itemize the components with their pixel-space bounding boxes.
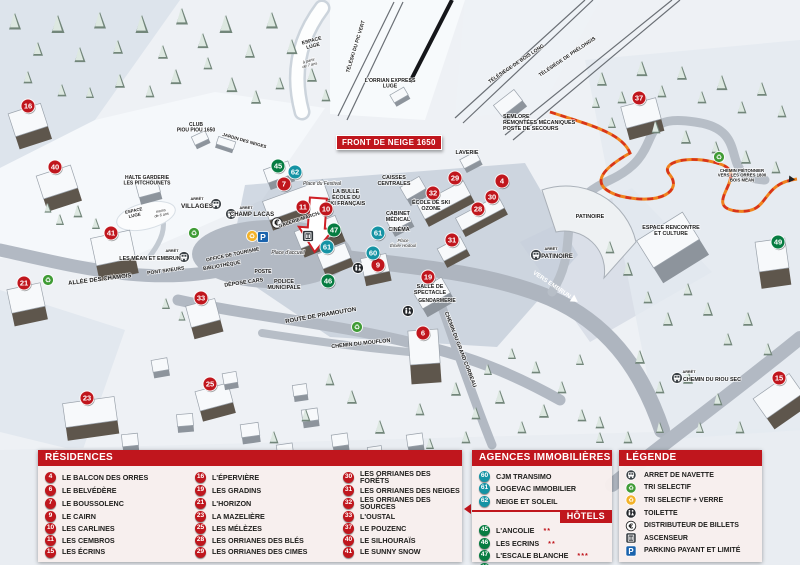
svg-text:P: P bbox=[260, 232, 266, 242]
svg-text:11: 11 bbox=[299, 203, 307, 212]
item-label: L'ESCALE BLANCHE bbox=[496, 552, 568, 559]
item-label: LE POUZENC bbox=[360, 525, 406, 532]
svg-text:♻: ♻ bbox=[628, 497, 634, 505]
legende-item: €DISTRIBUTEUR DE BILLETS bbox=[625, 519, 760, 532]
map-label: LAVERIE bbox=[456, 150, 479, 156]
item-label: DISTRIBUTEUR DE BILLETS bbox=[644, 522, 739, 529]
map-label: PATINOIRE bbox=[576, 214, 605, 220]
hotels-title: HÔTELS bbox=[560, 510, 612, 523]
residence-item: 11LES CEMBROS bbox=[45, 534, 195, 546]
svg-text:30: 30 bbox=[488, 193, 496, 202]
svg-text:32: 32 bbox=[429, 189, 437, 198]
agences-list: 60CJM TRANSIMO61LOGEVAC IMMOBILIER62NEIG… bbox=[472, 466, 612, 508]
residence-item: 19LES GRADINS bbox=[195, 484, 343, 496]
map-label: VILLAGES bbox=[181, 203, 214, 210]
map-label: POSTE bbox=[255, 269, 273, 275]
marker-number-badge: 41 bbox=[343, 547, 354, 558]
item-label: LE SILHOURAÏS bbox=[360, 537, 416, 544]
svg-text:41: 41 bbox=[107, 229, 115, 238]
marker-number-badge: 29 bbox=[195, 547, 206, 558]
residence-item: 15LES ÉCRINS bbox=[45, 546, 195, 558]
svg-text:60: 60 bbox=[369, 249, 377, 258]
hotel-item: 46LES ECRINS** bbox=[479, 537, 608, 550]
marker-number-badge: 21 bbox=[195, 498, 206, 509]
map-label: CINÉMA bbox=[388, 225, 409, 233]
residence-item: 9LE CAIRN bbox=[45, 511, 195, 523]
marker-number-badge: 60 bbox=[479, 471, 490, 482]
recycle-verre-icon: ♻ bbox=[247, 231, 258, 242]
residence-item: 29LES ORRIANES DES CIMES bbox=[195, 546, 343, 558]
map-label: ARRÊT bbox=[165, 248, 179, 253]
residence-item: 4LE BALCON DES ORRES bbox=[45, 470, 195, 484]
svg-text:62: 62 bbox=[291, 168, 299, 177]
hotel-item: 45L'ANCOLIE** bbox=[479, 525, 608, 538]
euro-icon: € bbox=[626, 521, 636, 531]
svg-text:31: 31 bbox=[448, 236, 456, 245]
marker-number-badge: 4 bbox=[45, 472, 56, 483]
marker-number-badge: 40 bbox=[343, 535, 354, 546]
legende-panel: LÉGENDE ARRET DE NAVETTE♻TRI SELECTIF♻TR… bbox=[619, 450, 762, 562]
item-label: LES CARLINES bbox=[62, 525, 115, 532]
svg-text:9: 9 bbox=[376, 261, 380, 270]
marker-number-badge: 25 bbox=[195, 523, 206, 534]
map-label: PATINOIRE bbox=[541, 254, 573, 260]
agences-panel: AGENCES IMMOBILIÈRES 60CJM TRANSIMO61LOG… bbox=[472, 450, 612, 562]
item-label: LES ECRINS bbox=[496, 540, 539, 547]
agence-item: 61LOGEVAC IMMOBILIER bbox=[479, 483, 608, 496]
residence-item: 28LES ORRIANES DES BLÉS bbox=[195, 534, 343, 546]
marker-number-badge: 19 bbox=[195, 485, 206, 496]
marker-number-badge: 62 bbox=[479, 496, 490, 507]
item-label: ASCENSEUR bbox=[644, 535, 688, 542]
item-label: LES ORRIANES DES NEIGES bbox=[360, 487, 460, 494]
residence-item: 16L'ÉPERVIÈRE bbox=[195, 470, 343, 484]
legende-item: ♻TRI SELECTIF + VERRE bbox=[625, 494, 760, 507]
svg-text:28: 28 bbox=[474, 205, 482, 214]
item-label: LE BOUSSOLENC bbox=[62, 500, 124, 507]
marker-number-badge: 6 bbox=[45, 485, 56, 496]
hotel-item: 47L'ESCALE BLANCHE*** bbox=[479, 550, 608, 563]
euro-icon: € bbox=[625, 520, 637, 532]
marker-number-badge: 15 bbox=[45, 547, 56, 558]
item-label: LES ORRIANES DES BLÉS bbox=[212, 537, 304, 544]
toilette-icon bbox=[403, 306, 414, 317]
marker-number-badge: 28 bbox=[195, 535, 206, 546]
svg-text:29: 29 bbox=[451, 174, 459, 183]
residence-item: 37LE POUZENC bbox=[343, 522, 460, 534]
svg-text:16: 16 bbox=[24, 102, 32, 111]
residence-item: 7LE BOUSSOLENC bbox=[45, 496, 195, 510]
recycle-verre-icon: ♻ bbox=[625, 494, 637, 506]
marker-number-badge: 61 bbox=[479, 483, 490, 494]
ascenseur-icon bbox=[625, 532, 637, 544]
legende-list: ARRET DE NAVETTE♻TRI SELECTIF♻TRI SELECT… bbox=[619, 466, 762, 557]
marker-number-badge: 11 bbox=[45, 535, 56, 546]
svg-text:7: 7 bbox=[282, 180, 286, 189]
panel-pointer-icon bbox=[464, 504, 471, 514]
marker-number-badge: 9 bbox=[45, 511, 56, 522]
hotel-stars: ** bbox=[548, 540, 556, 547]
hotels-divider: HÔTELS bbox=[472, 510, 612, 523]
toilette-icon bbox=[625, 507, 637, 519]
marker-number-badge: 30 bbox=[343, 472, 354, 483]
marker-number-badge: 46 bbox=[479, 538, 490, 549]
item-label: L'ANCOLIE bbox=[496, 527, 534, 534]
item-label: CJM TRANSIMO bbox=[496, 473, 552, 480]
recycle-icon: ♻ bbox=[626, 483, 636, 493]
marker-number-badge: 37 bbox=[343, 523, 354, 534]
svg-text:♻: ♻ bbox=[45, 276, 51, 284]
item-label: LES ORRIANES DES CIMES bbox=[212, 548, 307, 555]
svg-text:10: 10 bbox=[322, 205, 330, 214]
legende-item: TOILETTE bbox=[625, 507, 760, 520]
map-label: ARRÊT bbox=[682, 369, 696, 374]
residence-item: 21L'HORIZON bbox=[195, 496, 343, 510]
svg-text:25: 25 bbox=[206, 380, 214, 389]
svg-text:♻: ♻ bbox=[191, 229, 197, 237]
legende-item: PPARKING PAYANT ET LIMITÉ bbox=[625, 545, 760, 558]
residences-list: 4LE BALCON DES ORRES6LE BELVÉDÈRE7LE BOU… bbox=[38, 466, 462, 562]
residence-item: 33L'OUSTAL bbox=[343, 511, 460, 523]
item-label: LA MAZELIÈRE bbox=[212, 513, 265, 520]
map-label: CHAMP LACAS bbox=[230, 212, 274, 218]
svg-text:19: 19 bbox=[424, 273, 432, 282]
recycle-icon: ♻ bbox=[43, 275, 54, 286]
item-label: LES GRADINS bbox=[212, 487, 261, 494]
item-label: LES MÉLÈZES bbox=[212, 525, 262, 532]
map-label: GENDARMERIE bbox=[418, 298, 456, 304]
legende-item: ASCENSEUR bbox=[625, 532, 760, 545]
svg-text:♻: ♻ bbox=[628, 484, 634, 492]
parking-icon: P bbox=[258, 232, 269, 243]
svg-text:33: 33 bbox=[197, 294, 205, 303]
bus-icon bbox=[625, 469, 637, 481]
agence-item: 60CJM TRANSIMO bbox=[479, 470, 608, 483]
map-label: ARRÊT bbox=[544, 246, 558, 251]
item-label: LES ORRIANES DES SOURCES bbox=[360, 496, 460, 510]
svg-text:23: 23 bbox=[83, 394, 91, 403]
residence-item: 23LA MAZELIÈRE bbox=[195, 511, 343, 523]
marker-number-badge: 32 bbox=[343, 498, 354, 509]
residence-item: 40LE SILHOURAÏS bbox=[343, 534, 460, 546]
item-label: PARKING PAYANT ET LIMITÉ bbox=[644, 547, 740, 554]
svg-text:15: 15 bbox=[775, 374, 783, 383]
parking-icon: P bbox=[625, 545, 637, 557]
marker-number-badge: 47 bbox=[479, 550, 490, 561]
svg-text:46: 46 bbox=[324, 277, 332, 286]
map-label: SALLE DESPECTACLE bbox=[414, 284, 447, 296]
marker-number-badge: 45 bbox=[479, 525, 490, 536]
item-label: L'ÉPERVIÈRE bbox=[212, 474, 259, 481]
legende-item: ARRET DE NAVETTE bbox=[625, 469, 760, 482]
item-label: LES ORRIANES DES FORÊTS bbox=[360, 470, 460, 484]
item-label: NEIGE ET SOLEIL bbox=[496, 498, 558, 505]
map-label: LES MÉAN ET EMBRUN bbox=[119, 254, 181, 262]
map-label: Place du Festival bbox=[303, 181, 342, 187]
front-de-neige-banner: FRONT DE NEIGE 1650 bbox=[336, 135, 442, 150]
residences-panel: RÉSIDENCES 4LE BALCON DES ORRES6LE BELVÉ… bbox=[38, 450, 462, 562]
svg-text:61: 61 bbox=[374, 229, 382, 238]
residences-title: RÉSIDENCES bbox=[38, 450, 462, 466]
item-label: TRI SELECTIF + VERRE bbox=[644, 497, 723, 504]
svg-text:6: 6 bbox=[421, 329, 425, 338]
bus-icon bbox=[531, 250, 542, 261]
marker-number-badge: 23 bbox=[195, 511, 206, 522]
svg-text:37: 37 bbox=[635, 94, 643, 103]
svg-text:♻: ♻ bbox=[354, 323, 360, 331]
item-label: LES ÉCRINS bbox=[62, 548, 105, 555]
map-label: CHEMIN DU RIOU SEC bbox=[683, 377, 741, 383]
residence-item: 41LE SUNNY SNOW bbox=[343, 546, 460, 558]
hotels-list: 45L'ANCOLIE**46LES ECRINS**47L'ESCALE BL… bbox=[472, 524, 612, 565]
agence-item: 62NEIGE ET SOLEIL bbox=[479, 495, 608, 508]
marker-number-badge: 33 bbox=[343, 511, 354, 522]
svg-text:♻: ♻ bbox=[249, 232, 255, 240]
map-label: ARRÊT bbox=[239, 205, 253, 210]
resort-map-page: ♻♻♻♻♻P€CLUBPIOU PIOU 1650JARDIN DES NEIG… bbox=[0, 0, 800, 565]
svg-text:49: 49 bbox=[774, 238, 782, 247]
recycle-verre-icon: ♻ bbox=[626, 495, 636, 505]
residence-item: 10LES CARLINES bbox=[45, 522, 195, 534]
item-label: L'OUSTAL bbox=[360, 513, 395, 520]
toilette-icon bbox=[353, 263, 364, 274]
svg-text:♻: ♻ bbox=[716, 153, 722, 161]
ascenseur-icon bbox=[303, 231, 314, 242]
recycle-icon: ♻ bbox=[352, 322, 363, 333]
hotel-stars: *** bbox=[577, 552, 588, 559]
map-label: ARRÊT bbox=[190, 196, 204, 201]
marker-number-badge: 16 bbox=[195, 472, 206, 483]
residence-item: 25LES MÉLÈZES bbox=[195, 522, 343, 534]
ascenseur-icon bbox=[626, 533, 636, 543]
item-label: LE BELVÉDÈRE bbox=[62, 487, 117, 494]
svg-text:21: 21 bbox=[20, 279, 28, 288]
map-label: Place d'accueil bbox=[271, 250, 305, 256]
bus-icon bbox=[672, 373, 683, 384]
map-label: HALTE GARDERIELES PITCHOUNETS bbox=[124, 175, 172, 187]
item-label: LES CEMBROS bbox=[62, 537, 115, 544]
marker-number-badge: 7 bbox=[45, 498, 56, 509]
svg-text:45: 45 bbox=[274, 162, 282, 171]
item-label: L'HORIZON bbox=[212, 500, 251, 507]
item-label: TRI SELECTIF bbox=[644, 484, 691, 491]
agences-title: AGENCES IMMOBILIÈRES bbox=[472, 450, 612, 466]
recycle-icon: ♻ bbox=[714, 152, 725, 163]
svg-text:47: 47 bbox=[330, 226, 338, 235]
residence-item: 6LE BELVÉDÈRE bbox=[45, 484, 195, 496]
marker-number-badge: 31 bbox=[343, 485, 354, 496]
toilette-icon bbox=[626, 508, 636, 518]
svg-text:61: 61 bbox=[323, 243, 331, 252]
parking-icon: P bbox=[626, 546, 636, 556]
item-label: LE SUNNY SNOW bbox=[360, 548, 421, 555]
item-label: TOILETTE bbox=[644, 510, 678, 517]
map-label: CABINETMÉDICAL bbox=[386, 211, 411, 223]
recycle-icon: ♻ bbox=[189, 228, 200, 239]
item-label: ARRET DE NAVETTE bbox=[644, 472, 714, 479]
marker-number-badge: 10 bbox=[45, 523, 56, 534]
residence-item: 32LES ORRIANES DES SOURCES bbox=[343, 496, 460, 510]
item-label: LE BALCON DES ORRES bbox=[62, 474, 148, 481]
hotel-stars: ** bbox=[543, 527, 551, 534]
svg-text:40: 40 bbox=[51, 163, 59, 172]
legende-item: ♻TRI SELECTIF bbox=[625, 482, 760, 495]
recycle-icon: ♻ bbox=[625, 482, 637, 494]
item-label: LOGEVAC IMMOBILIER bbox=[496, 485, 576, 492]
item-label: LE CAIRN bbox=[62, 513, 96, 520]
bus-icon bbox=[626, 470, 636, 480]
svg-text:P: P bbox=[628, 547, 633, 556]
residence-item: 30LES ORRIANES DES FORÊTS bbox=[343, 470, 460, 484]
legende-title: LÉGENDE bbox=[619, 450, 762, 466]
svg-text:€: € bbox=[628, 522, 634, 530]
